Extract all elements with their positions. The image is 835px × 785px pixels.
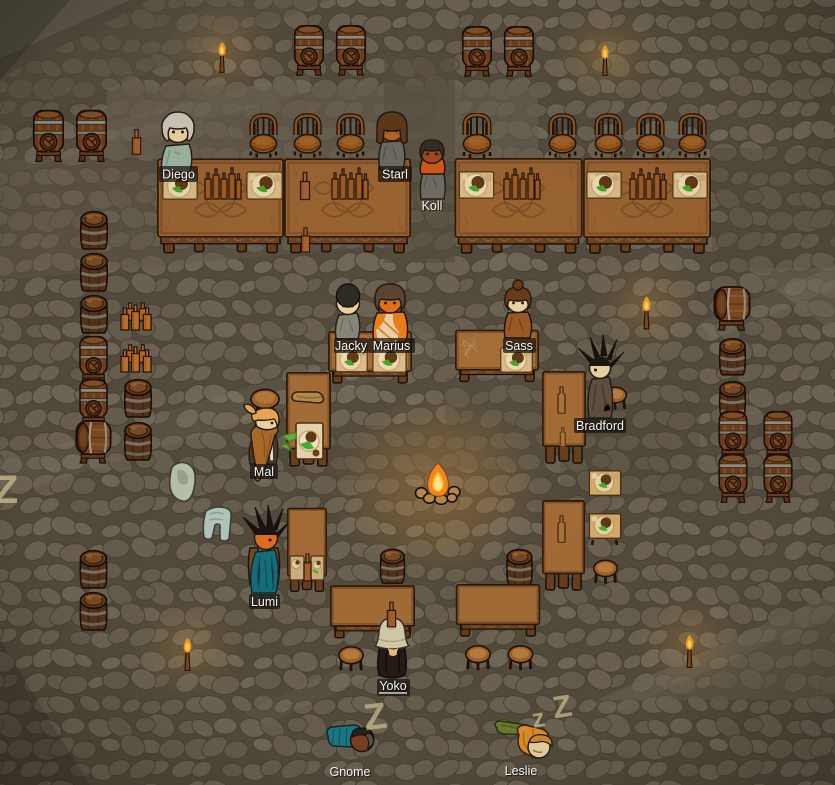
svg-text:Jacky: Jacky xyxy=(335,339,368,353)
svg-text:Leslie: Leslie xyxy=(505,764,538,778)
svg-text:Mal: Mal xyxy=(254,465,274,479)
svg-text:Bradford: Bradford xyxy=(576,419,624,433)
svg-text:Lumi: Lumi xyxy=(251,595,278,609)
svg-text:Diego: Diego xyxy=(162,168,195,182)
svg-text:Koll: Koll xyxy=(422,199,443,213)
svg-text:Z: Z xyxy=(0,468,18,512)
svg-text:Starl: Starl xyxy=(382,168,408,182)
svg-text:Sass: Sass xyxy=(505,339,533,353)
svg-text:Gnome: Gnome xyxy=(330,765,371,779)
svg-text:Marius: Marius xyxy=(373,339,411,353)
svg-text:Yoko: Yoko xyxy=(379,679,406,693)
